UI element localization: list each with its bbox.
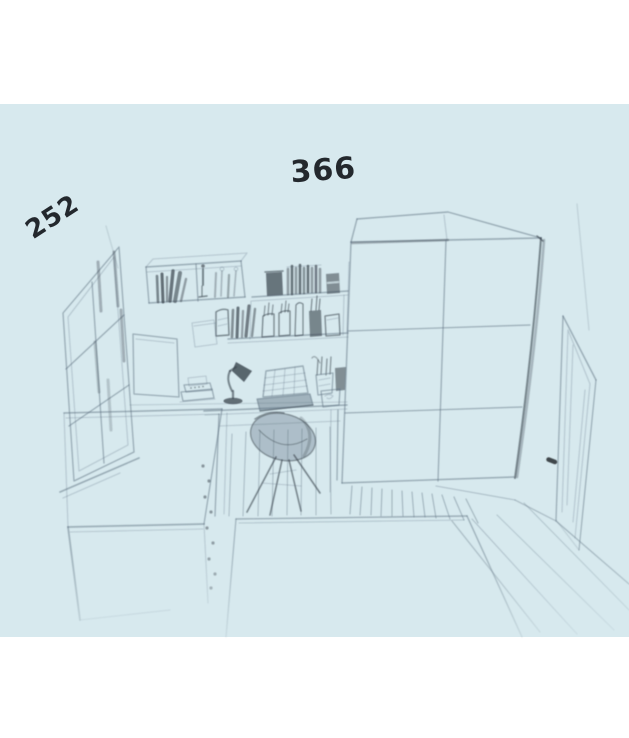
book-row bbox=[287, 265, 321, 294]
door-handle bbox=[549, 460, 556, 463]
room-sketch: 252 366 bbox=[0, 0, 629, 738]
dimension-back-wall: 366 bbox=[289, 151, 357, 190]
sketch-page: 252 366 bbox=[0, 0, 629, 738]
